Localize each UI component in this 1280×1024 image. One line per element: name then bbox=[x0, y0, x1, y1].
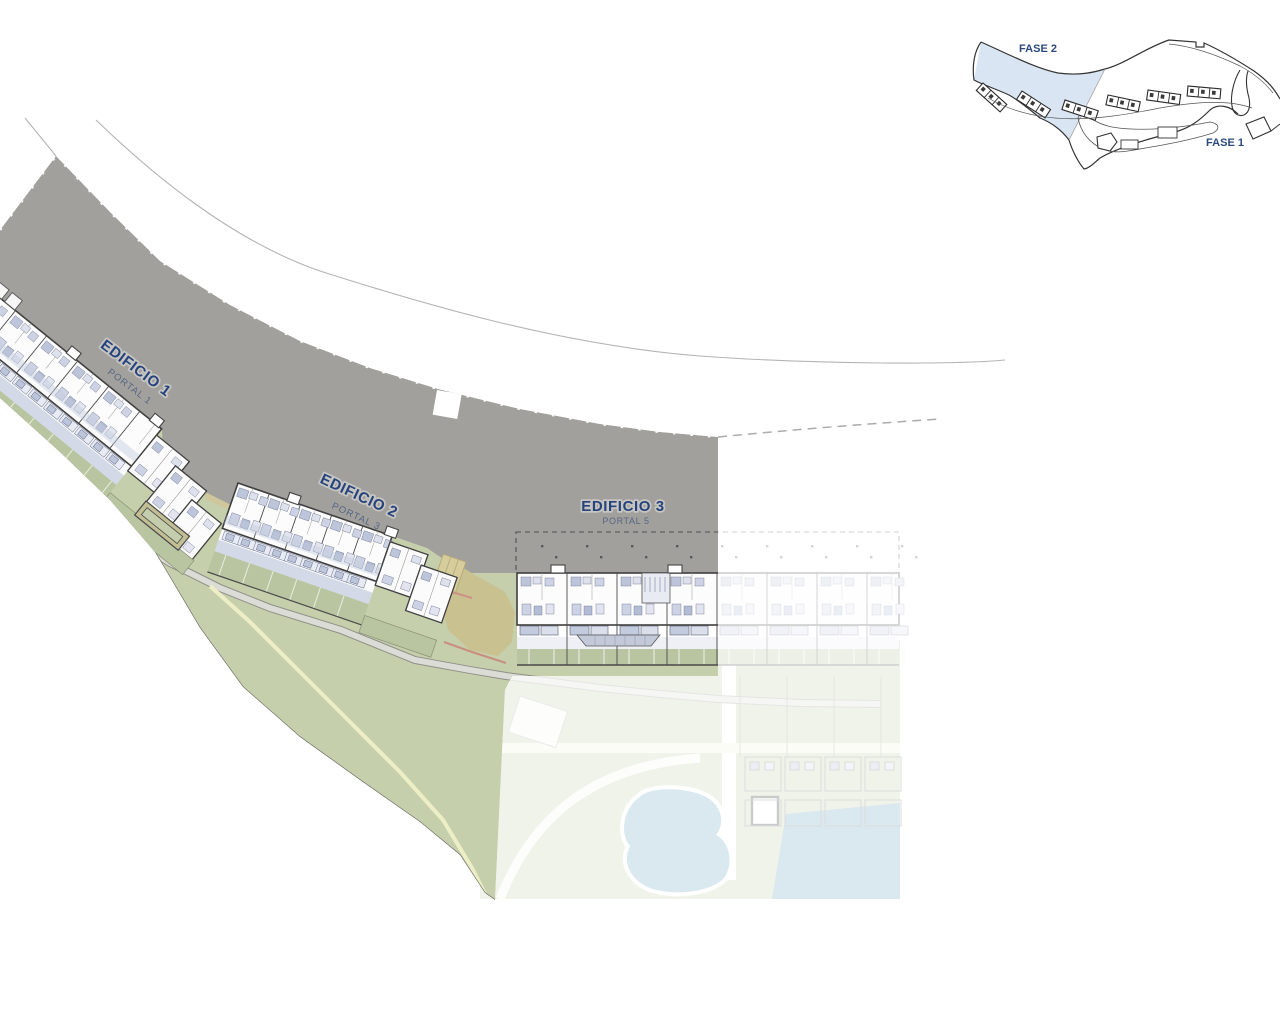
svg-text:FASE 2: FASE 2 bbox=[1019, 43, 1057, 55]
svg-text:FASE 1: FASE 1 bbox=[1206, 137, 1244, 149]
svg-text:EDIFICIO 3: EDIFICIO 3 bbox=[581, 498, 665, 515]
svg-text:PORTAL 5: PORTAL 5 bbox=[602, 516, 649, 526]
